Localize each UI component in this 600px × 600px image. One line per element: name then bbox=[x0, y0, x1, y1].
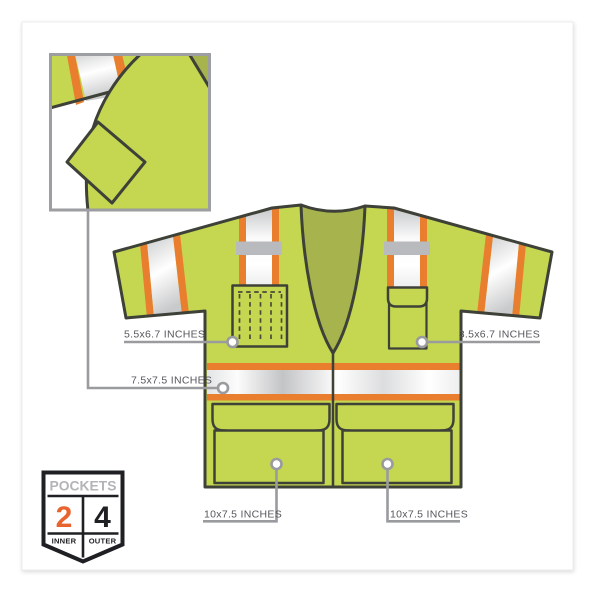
badge-title: POCKETS bbox=[50, 478, 117, 494]
diagram-canvas: 7.5x7.5 INCHES 5.5x6.7 INCHES 3.5x6.7 IN… bbox=[0, 0, 600, 600]
badge-inner-label: INNER bbox=[52, 537, 77, 546]
pointer-ring bbox=[383, 459, 393, 469]
left-pocket-body bbox=[215, 431, 324, 484]
pointer-ring bbox=[228, 337, 238, 347]
badge-pocket-flap bbox=[388, 288, 427, 307]
measurement-label: 3.5x6.7 INCHES bbox=[459, 329, 540, 341]
pointer-ring bbox=[218, 383, 228, 393]
badge-inner-count: 2 bbox=[56, 501, 73, 534]
right-mic-tab bbox=[384, 242, 430, 256]
right-pocket-body bbox=[343, 431, 452, 484]
badge-outer-count: 4 bbox=[94, 501, 111, 534]
pockets-badge: POCKETS 2 4 INNER OUTER bbox=[44, 473, 123, 562]
left-lower-pocket bbox=[213, 404, 330, 483]
measurement-label: 7.5x7.5 INCHES bbox=[131, 375, 212, 387]
measurement-label: 10x7.5 INCHES bbox=[204, 509, 282, 521]
right-pocket-flap bbox=[337, 404, 454, 432]
badge-outer-label: OUTER bbox=[89, 537, 117, 546]
inset-detail-box bbox=[50, 50, 211, 211]
left-mic-tab bbox=[236, 242, 282, 256]
pointer-ring bbox=[272, 459, 282, 469]
left-pocket-flap bbox=[213, 404, 330, 432]
right-lower-pocket bbox=[337, 404, 454, 483]
pointer-ring bbox=[417, 337, 427, 347]
measurement-label: 5.5x6.7 INCHES bbox=[124, 329, 205, 341]
left-chest-pocket bbox=[233, 286, 288, 347]
measurement-label: 10x7.5 INCHES bbox=[390, 509, 468, 521]
